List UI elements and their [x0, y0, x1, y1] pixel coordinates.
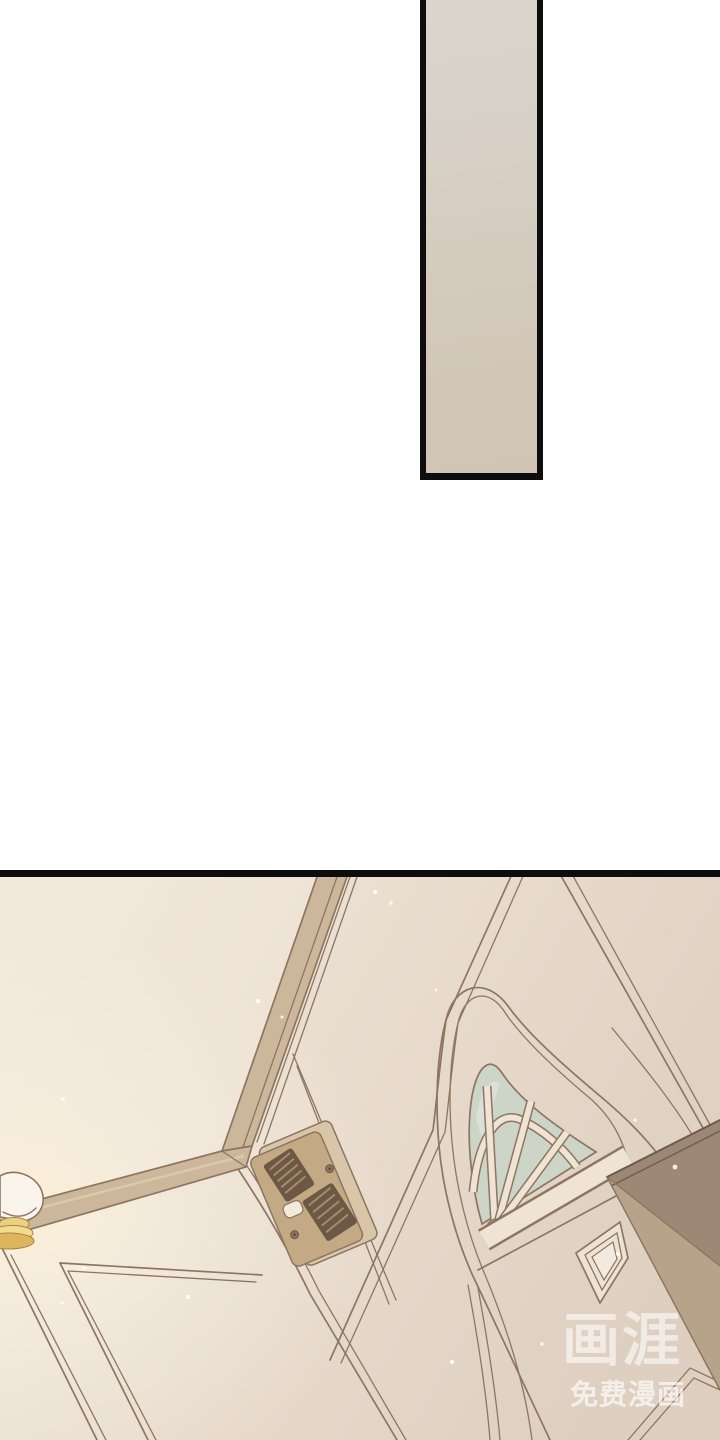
panel-border-top	[0, 870, 720, 877]
comic-page: 画涯 免费漫画	[0, 0, 720, 1440]
watermark-subtitle: 免费漫画	[570, 1381, 686, 1409]
diamond-sheen	[616, 1252, 620, 1256]
watermark-logo: 画涯	[562, 1312, 702, 1370]
top-panel	[420, 0, 543, 480]
